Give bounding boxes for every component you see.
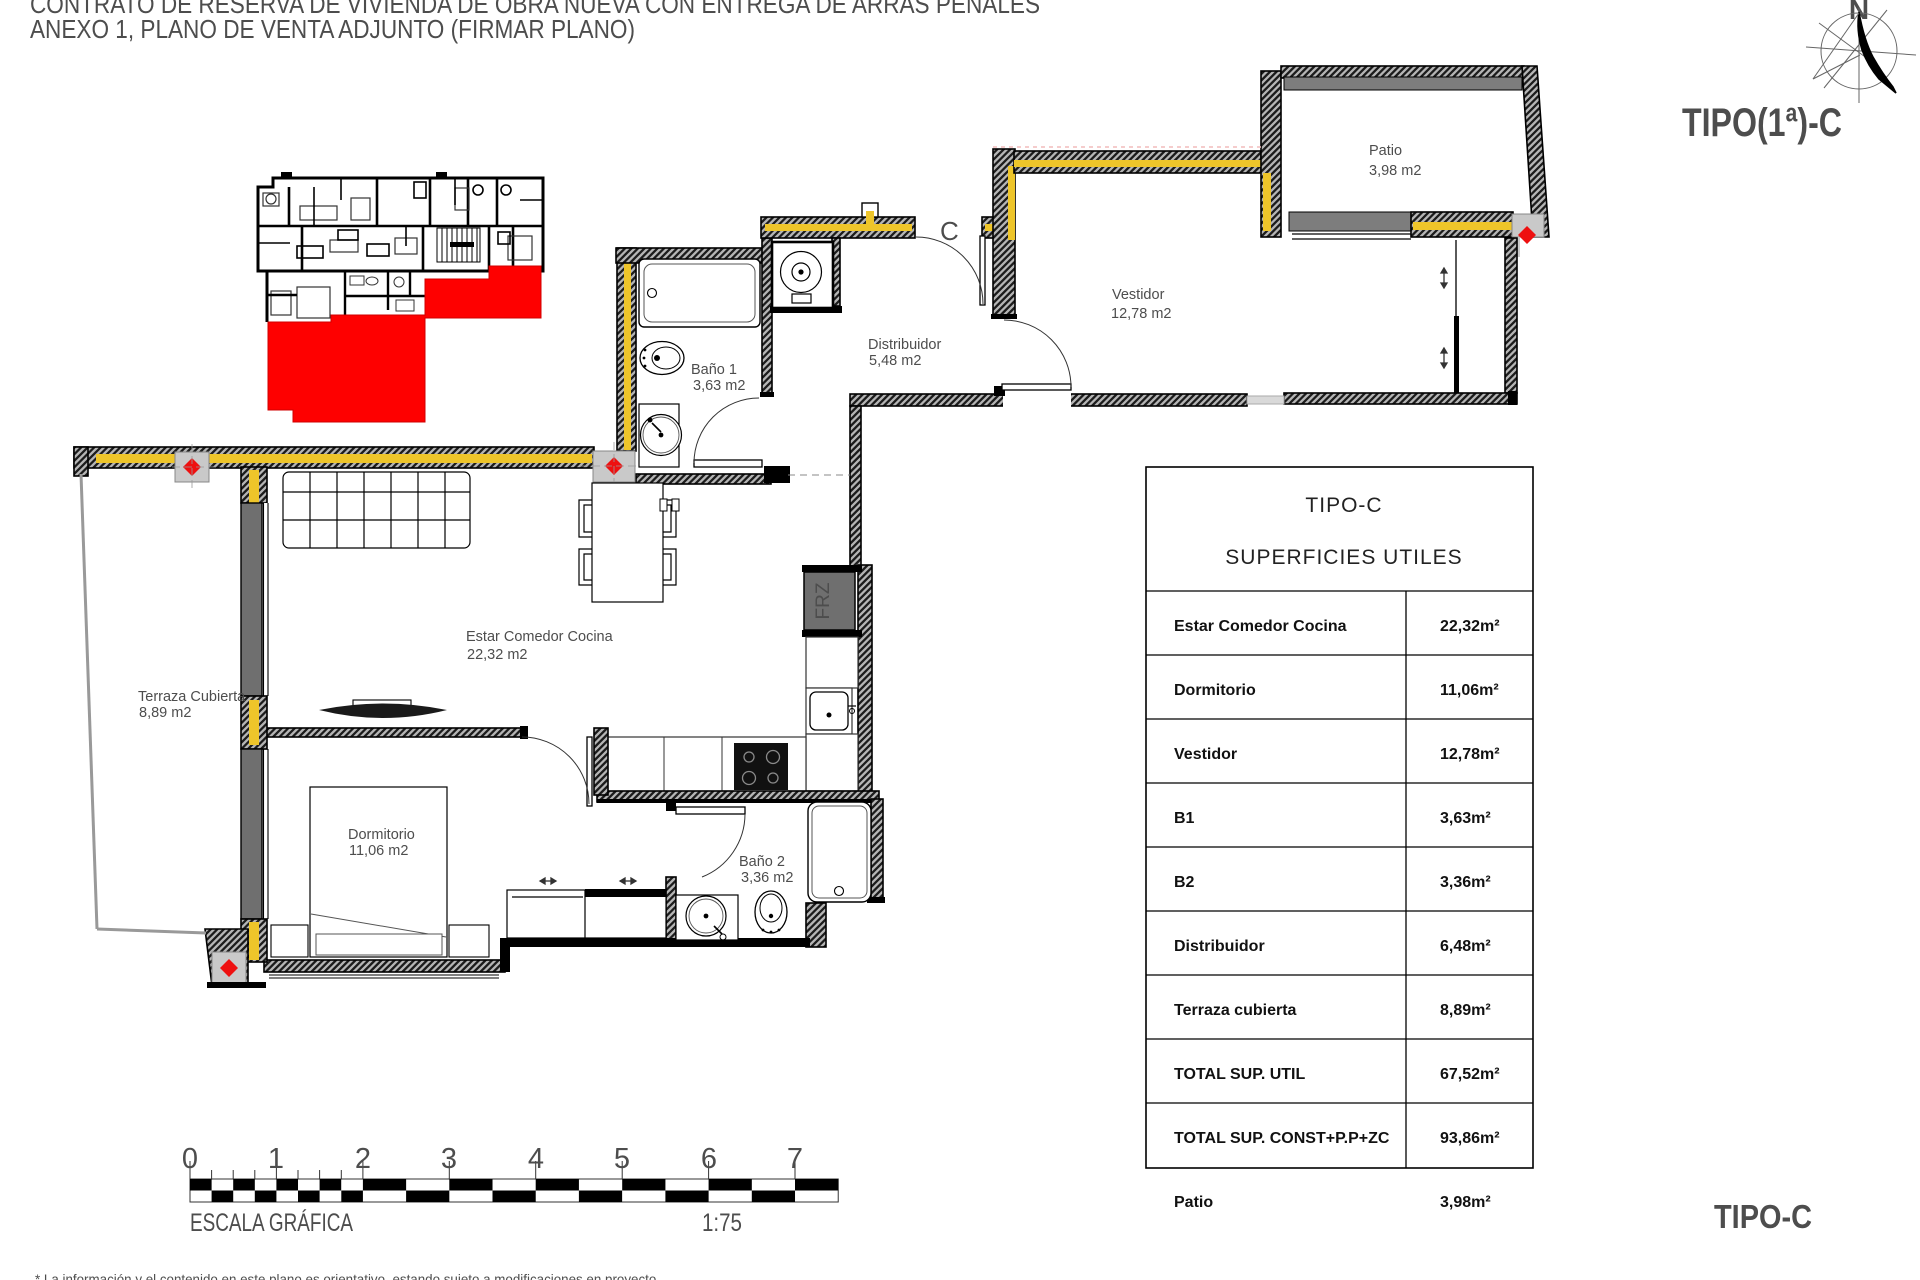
svg-text:Estar Comedor Cocina: Estar Comedor Cocina bbox=[1174, 618, 1347, 635]
svg-text:8,89 m2: 8,89 m2 bbox=[139, 705, 191, 721]
svg-text:Dormitorio: Dormitorio bbox=[348, 827, 415, 843]
svg-text:22,32 m2: 22,32 m2 bbox=[467, 647, 527, 663]
svg-text:8,89m²: 8,89m² bbox=[1440, 1002, 1491, 1019]
svg-text:6,48m²: 6,48m² bbox=[1440, 938, 1491, 955]
svg-text:Patio: Patio bbox=[1174, 1194, 1213, 1211]
svg-text:ANEXO 1, PLANO DE VENTA ADJUNT: ANEXO 1, PLANO DE VENTA ADJUNTO (FIRMAR … bbox=[30, 14, 635, 44]
svg-text:12,78 m2: 12,78 m2 bbox=[1111, 306, 1171, 322]
svg-text:3,98 m2: 3,98 m2 bbox=[1369, 163, 1421, 179]
svg-text:Baño 2: Baño 2 bbox=[739, 854, 785, 870]
svg-text:11,06 m2: 11,06 m2 bbox=[349, 843, 408, 859]
svg-text:Vestidor: Vestidor bbox=[1112, 287, 1165, 303]
svg-text:11,06m²: 11,06m² bbox=[1440, 682, 1499, 699]
svg-text:Patio: Patio bbox=[1369, 143, 1402, 159]
svg-text:22,32m²: 22,32m² bbox=[1440, 618, 1500, 635]
svg-text:2: 2 bbox=[355, 1143, 371, 1175]
svg-text:Baño 1: Baño 1 bbox=[691, 362, 737, 378]
svg-text:Vestidor: Vestidor bbox=[1174, 746, 1237, 763]
svg-text:Terraza Cubierta: Terraza Cubierta bbox=[138, 689, 246, 705]
svg-text:1:75: 1:75 bbox=[702, 1209, 742, 1237]
svg-text:4: 4 bbox=[528, 1143, 544, 1175]
svg-text:SUPERFICIES UTILES: SUPERFICIES UTILES bbox=[1225, 546, 1462, 569]
svg-text:7: 7 bbox=[787, 1143, 803, 1175]
svg-text:TOTAL SUP. UTIL: TOTAL SUP. UTIL bbox=[1174, 1066, 1306, 1083]
svg-text:93,86m²: 93,86m² bbox=[1440, 1130, 1500, 1147]
svg-text:TOTAL SUP. CONST+P.P+ZC: TOTAL SUP. CONST+P.P+ZC bbox=[1174, 1130, 1390, 1147]
svg-text:ESCALA GRÁFICA: ESCALA GRÁFICA bbox=[190, 1208, 353, 1237]
svg-text:* La información y el contenid: * La información y el contenido en este … bbox=[35, 1271, 660, 1280]
svg-text:12,78m²: 12,78m² bbox=[1440, 746, 1500, 763]
svg-text:Terraza cubierta: Terraza cubierta bbox=[1174, 1002, 1297, 1019]
svg-text:1: 1 bbox=[268, 1143, 284, 1175]
svg-text:3,36 m2: 3,36 m2 bbox=[741, 870, 793, 886]
svg-text:C: C bbox=[940, 216, 959, 246]
svg-text:Estar Comedor Cocina: Estar Comedor Cocina bbox=[466, 629, 614, 645]
svg-text:5,48 m2: 5,48 m2 bbox=[869, 353, 921, 369]
svg-text:3,98m²: 3,98m² bbox=[1440, 1194, 1491, 1211]
svg-text:67,52m²: 67,52m² bbox=[1440, 1066, 1500, 1083]
svg-text:TIPO-C: TIPO-C bbox=[1714, 1198, 1812, 1235]
svg-text:TIPO(1ª)-C: TIPO(1ª)-C bbox=[1682, 101, 1842, 145]
svg-text:6: 6 bbox=[701, 1143, 717, 1175]
svg-text:Distribuidor: Distribuidor bbox=[1174, 938, 1265, 955]
svg-text:B2: B2 bbox=[1174, 874, 1195, 891]
svg-text:3,36m²: 3,36m² bbox=[1440, 874, 1491, 891]
svg-text:3,63 m2: 3,63 m2 bbox=[693, 378, 745, 394]
svg-text:TIPO-C: TIPO-C bbox=[1305, 494, 1382, 517]
svg-text:3: 3 bbox=[441, 1143, 457, 1175]
svg-text:B1: B1 bbox=[1174, 810, 1195, 827]
svg-text:3,63m²: 3,63m² bbox=[1440, 810, 1491, 827]
svg-text:Dormitorio: Dormitorio bbox=[1174, 682, 1256, 699]
svg-text:FRZ: FRZ bbox=[813, 582, 834, 619]
svg-text:Distribuidor: Distribuidor bbox=[868, 337, 941, 353]
svg-text:5: 5 bbox=[614, 1143, 630, 1175]
svg-text:0: 0 bbox=[182, 1143, 198, 1175]
